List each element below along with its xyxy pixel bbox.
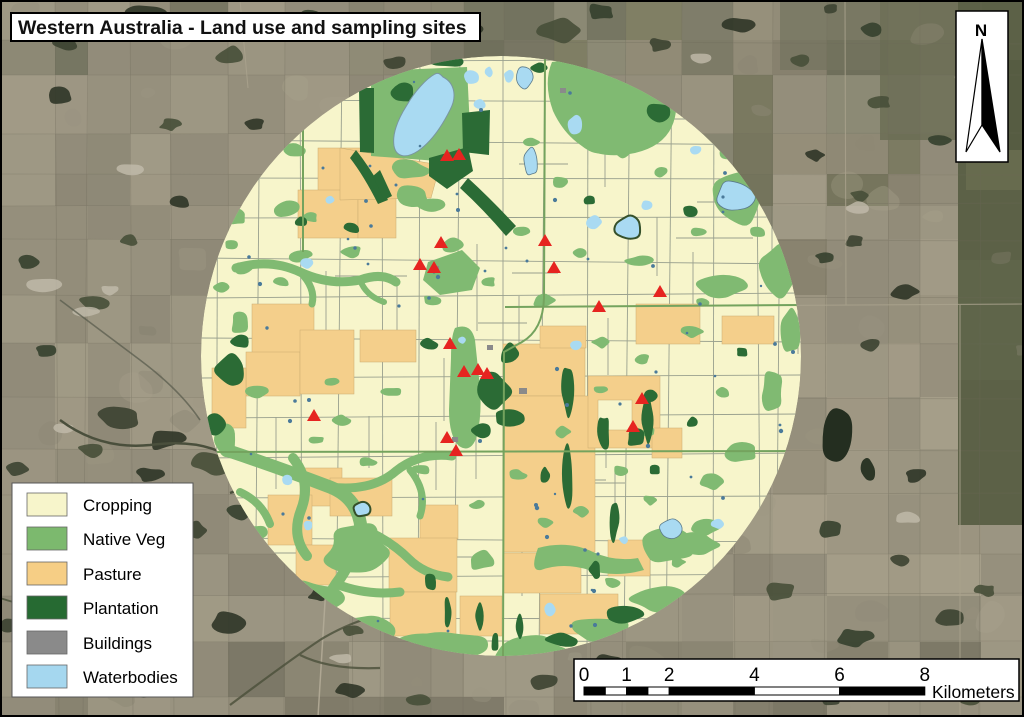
svg-text:Western Australia - Land use a: Western Australia - Land use and samplin… [18, 17, 467, 39]
svg-text:6: 6 [834, 665, 845, 686]
svg-text:Waterbodies: Waterbodies [83, 668, 178, 687]
svg-text:Buildings: Buildings [83, 634, 152, 653]
svg-text:4: 4 [749, 665, 760, 686]
svg-text:1: 1 [621, 665, 632, 686]
svg-text:N: N [975, 21, 987, 40]
svg-text:Cropping: Cropping [83, 496, 152, 515]
svg-text:2: 2 [664, 665, 675, 686]
svg-text:8: 8 [920, 665, 931, 686]
svg-text:Plantation: Plantation [83, 599, 159, 618]
svg-text:0: 0 [579, 665, 590, 686]
svg-text:Kilometers: Kilometers [932, 682, 1015, 702]
svg-text:Pasture: Pasture [83, 565, 142, 584]
svg-text:Native Veg: Native Veg [83, 530, 165, 549]
